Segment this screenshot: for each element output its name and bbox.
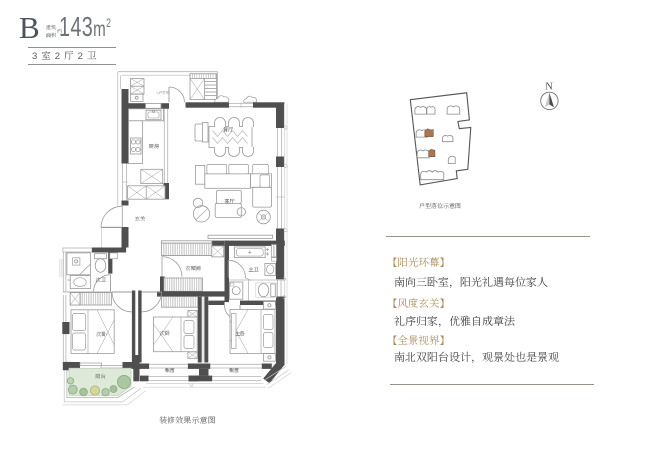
svg-text:次卫: 次卫 bbox=[96, 276, 107, 283]
svg-text:阳台: 阳台 bbox=[95, 373, 105, 380]
svg-text:次卧: 次卧 bbox=[160, 330, 170, 337]
svg-text:主卫: 主卫 bbox=[248, 266, 259, 273]
svg-text:厨房: 厨房 bbox=[148, 143, 160, 150]
svg-text:次卧: 次卧 bbox=[96, 331, 106, 338]
svg-text:客厅: 客厅 bbox=[224, 198, 235, 205]
svg-text:玄关: 玄关 bbox=[135, 215, 146, 222]
svg-text:衣帽间: 衣帽间 bbox=[185, 265, 201, 272]
svg-text:N: N bbox=[545, 82, 553, 93]
svg-text:餐厅: 餐厅 bbox=[222, 127, 234, 134]
svg-text:入户玄关: 入户玄关 bbox=[156, 90, 170, 95]
svg-text:飘窗: 飘窗 bbox=[228, 367, 239, 374]
svg-text:主卧: 主卧 bbox=[235, 330, 245, 337]
svg-text:飘窗: 飘窗 bbox=[164, 367, 175, 374]
